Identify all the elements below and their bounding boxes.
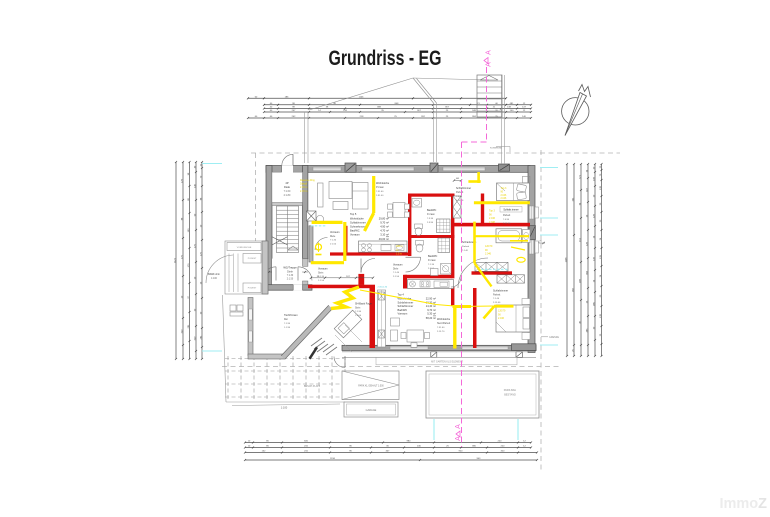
svg-text:Parkett: Parkett	[456, 191, 464, 194]
svg-text:4,90 m²: 4,90 m²	[380, 225, 389, 229]
svg-text:1158: 1158	[565, 257, 567, 262]
svg-text:7:3.30: 7:3.30	[427, 218, 434, 220]
svg-text:7:1.30: 7:1.30	[428, 264, 435, 266]
svg-text:1:1.90: 1:1.90	[284, 327, 291, 329]
svg-text:4P: 4P	[285, 181, 288, 185]
svg-text:2:15.70: 2:15.70	[437, 331, 445, 333]
svg-text:BESCH.PLATZ: BESCH.PLATZ	[304, 385, 321, 388]
svg-text:7:1.30: 7:1.30	[330, 240, 337, 242]
svg-text:Top 3: Top 3	[489, 210, 496, 213]
svg-text:Vorraum: Vorraum	[350, 233, 360, 237]
svg-text:7:31.60: 7:31.60	[437, 327, 445, 329]
svg-text:Dampf: Dampf	[300, 183, 307, 186]
svg-text:7:4.90: 7:4.90	[503, 219, 510, 221]
svg-text:Reserve-Ding: Reserve-Ding	[300, 179, 315, 182]
svg-text:Top 4: Top 4	[398, 293, 405, 297]
svg-text:A: A	[486, 50, 493, 55]
svg-text:1:100: 1:100	[281, 406, 288, 410]
svg-text:PODEST: PODEST	[248, 258, 257, 260]
svg-text:1.5 m: 1.5 m	[396, 253, 402, 256]
svg-text:1:100: 1:100	[211, 278, 217, 280]
svg-text:Vorraum: Vorraum	[318, 268, 327, 271]
svg-text:2:1.50: 2:1.50	[393, 276, 400, 278]
svg-text:Diele: Diele	[393, 268, 399, 270]
svg-text:Parkett: Parkett	[493, 293, 501, 296]
svg-text:1106: 1106	[359, 97, 364, 99]
svg-text:2.046: 2.046	[501, 198, 507, 200]
svg-text:SH-Bank Foyer: SH-Bank Foyer	[355, 303, 372, 306]
svg-text:Schrankraum: Schrankraum	[350, 225, 365, 229]
svg-text:WG/Treppe: WG/Treppe	[283, 266, 297, 270]
svg-text:Vorraum: Vorraum	[398, 312, 408, 316]
svg-text:Grundriss - EG: Grundriss - EG	[329, 46, 442, 70]
svg-text:Schlafzimmer: Schlafzimmer	[350, 221, 366, 225]
svg-text:P1 laan: P1 laan	[376, 187, 385, 189]
svg-text:2.05x1.30: 2.05x1.30	[378, 287, 388, 289]
svg-text:1158: 1158	[330, 458, 335, 460]
svg-text:2.046: 2.046	[501, 195, 507, 197]
svg-text:Parkett: Parkett	[503, 214, 511, 217]
svg-text:29,80 m²: 29,80 m²	[379, 217, 389, 221]
svg-text:2.046: 2.046	[485, 253, 492, 256]
svg-text:Wohnküche: Wohnküche	[437, 318, 451, 321]
svg-text:2:15.46: 2:15.46	[503, 223, 511, 225]
svg-text:Wohnküche: Wohnküche	[350, 217, 364, 221]
svg-text:2.046: 2.046	[498, 317, 505, 320]
svg-text:Schlafzimmer: Schlafzimmer	[493, 290, 508, 293]
svg-text:120/79: 120/79	[485, 245, 493, 248]
svg-text:2.15 m: 2.15 m	[300, 186, 307, 189]
svg-text:Schlafz.immer: Schlafz.immer	[503, 209, 518, 212]
svg-text:22,90 m²: 22,90 m²	[426, 297, 436, 301]
svg-text:BANK 2cm: BANK 2cm	[208, 273, 220, 276]
svg-text:Vorraum: Vorraum	[393, 264, 402, 267]
svg-text:Diele: Diele	[284, 185, 290, 189]
svg-text:2:15.46: 2:15.46	[456, 200, 464, 202]
svg-text:9,70 m²: 9,70 m²	[427, 308, 436, 312]
svg-text:Top 3: Top 3	[501, 187, 508, 190]
svg-text:2.046: 2.046	[489, 221, 496, 224]
svg-text:7:1.90: 7:1.90	[355, 311, 362, 313]
svg-text:PARK KL GEHALT 1:500: PARK KL GEHALT 1:500	[358, 384, 384, 387]
svg-text:F1 laan: F1 laan	[428, 260, 436, 262]
svg-text:7:31.60: 7:31.60	[376, 191, 384, 193]
svg-text:2.15 m: 2.15 m	[300, 190, 307, 193]
svg-text:2:91.00: 2:91.00	[376, 195, 384, 197]
svg-text:Diele: Diele	[287, 270, 293, 273]
svg-text:4,70 m²: 4,70 m²	[380, 229, 389, 233]
svg-text:Schlafzimmer: Schlafzimmer	[398, 304, 414, 308]
svg-text:2:1.50: 2:1.50	[287, 279, 294, 281]
svg-text:A: A	[455, 424, 462, 429]
svg-text:9,70 m²: 9,70 m²	[380, 221, 389, 225]
svg-text:3,10 m²: 3,10 m²	[380, 233, 389, 237]
svg-text:PODEST: PODEST	[248, 288, 257, 290]
svg-text:VORD.RECHE: VORD.RECHE	[237, 247, 252, 249]
svg-text:KOMMWND: KOMMWND	[490, 147, 502, 149]
svg-text:2:1.80: 2:1.80	[284, 194, 291, 197]
svg-text:7:3.40: 7:3.40	[456, 196, 463, 198]
svg-text:Parkett: Parkett	[462, 245, 469, 248]
svg-text:Stein: Stein	[318, 271, 324, 274]
svg-text:49,00 m²: 49,00 m²	[379, 237, 389, 241]
svg-text:F1 laan: F1 laan	[427, 214, 435, 216]
svg-text:Schlafzimmer: Schlafzimmer	[456, 187, 471, 190]
svg-text:7:1.46: 7:1.46	[462, 250, 469, 252]
svg-text:PARK.BAU: PARK.BAU	[504, 389, 517, 392]
svg-text:5,30 m²: 5,30 m²	[427, 312, 436, 316]
svg-text:2:1.50: 2:1.50	[318, 280, 325, 282]
svg-text:7:1.90: 7:1.90	[284, 323, 291, 325]
svg-text:230 m: 230 m	[396, 245, 403, 248]
svg-text:Wohnküche: Wohnküche	[376, 182, 390, 185]
svg-text:7:1.40: 7:1.40	[393, 272, 400, 274]
svg-text:Bad/WC: Bad/WC	[398, 308, 408, 312]
svg-text:7:1.30: 7:1.30	[287, 275, 294, 277]
svg-text:1121: 1121	[174, 257, 176, 262]
svg-text:120/79: 120/79	[498, 310, 506, 313]
svg-text:MIT GARTEN KLS ELEMENT: MIT GARTEN KLS ELEMENT	[431, 360, 463, 363]
svg-text:Tischfl.braun: Tischfl.braun	[284, 314, 298, 317]
svg-text:Stein/Parkett: Stein/Parkett	[437, 322, 451, 325]
svg-text:2:15.46: 2:15.46	[493, 302, 501, 304]
svg-text:2:3.90: 2:3.90	[427, 222, 434, 224]
svg-text:Diele: Diele	[330, 236, 336, 238]
svg-text:Bad/WC: Bad/WC	[427, 209, 437, 212]
svg-text:Vorraum: Vorraum	[330, 231, 339, 234]
svg-text:Bad/WC: Bad/WC	[428, 255, 438, 258]
svg-text:GRENZE: GRENZE	[549, 336, 559, 339]
svg-text:Stein: Stein	[355, 306, 361, 309]
svg-text:2.046: 2.046	[489, 217, 496, 220]
svg-text:ImmoZ: ImmoZ	[719, 496, 767, 512]
svg-text:Rat: Rat	[284, 318, 288, 321]
svg-text:GARAGE: GARAGE	[366, 409, 377, 412]
svg-text:1:5.00: 1:5.00	[355, 315, 362, 317]
svg-text:7:1.60: 7:1.60	[284, 190, 291, 193]
svg-text:Top 5: Top 5	[350, 212, 357, 216]
svg-text:7:1.46: 7:1.46	[493, 298, 500, 300]
svg-text:Bad/WC: Bad/WC	[350, 229, 360, 233]
svg-text:2:1.50: 2:1.50	[330, 243, 337, 245]
svg-text:A: A	[455, 436, 462, 441]
svg-text:Schlafzimmer: Schlafzimmer	[398, 300, 414, 304]
svg-text:BESTAND: BESTAND	[504, 394, 516, 397]
svg-text:58,20 m²: 58,20 m²	[426, 316, 436, 320]
